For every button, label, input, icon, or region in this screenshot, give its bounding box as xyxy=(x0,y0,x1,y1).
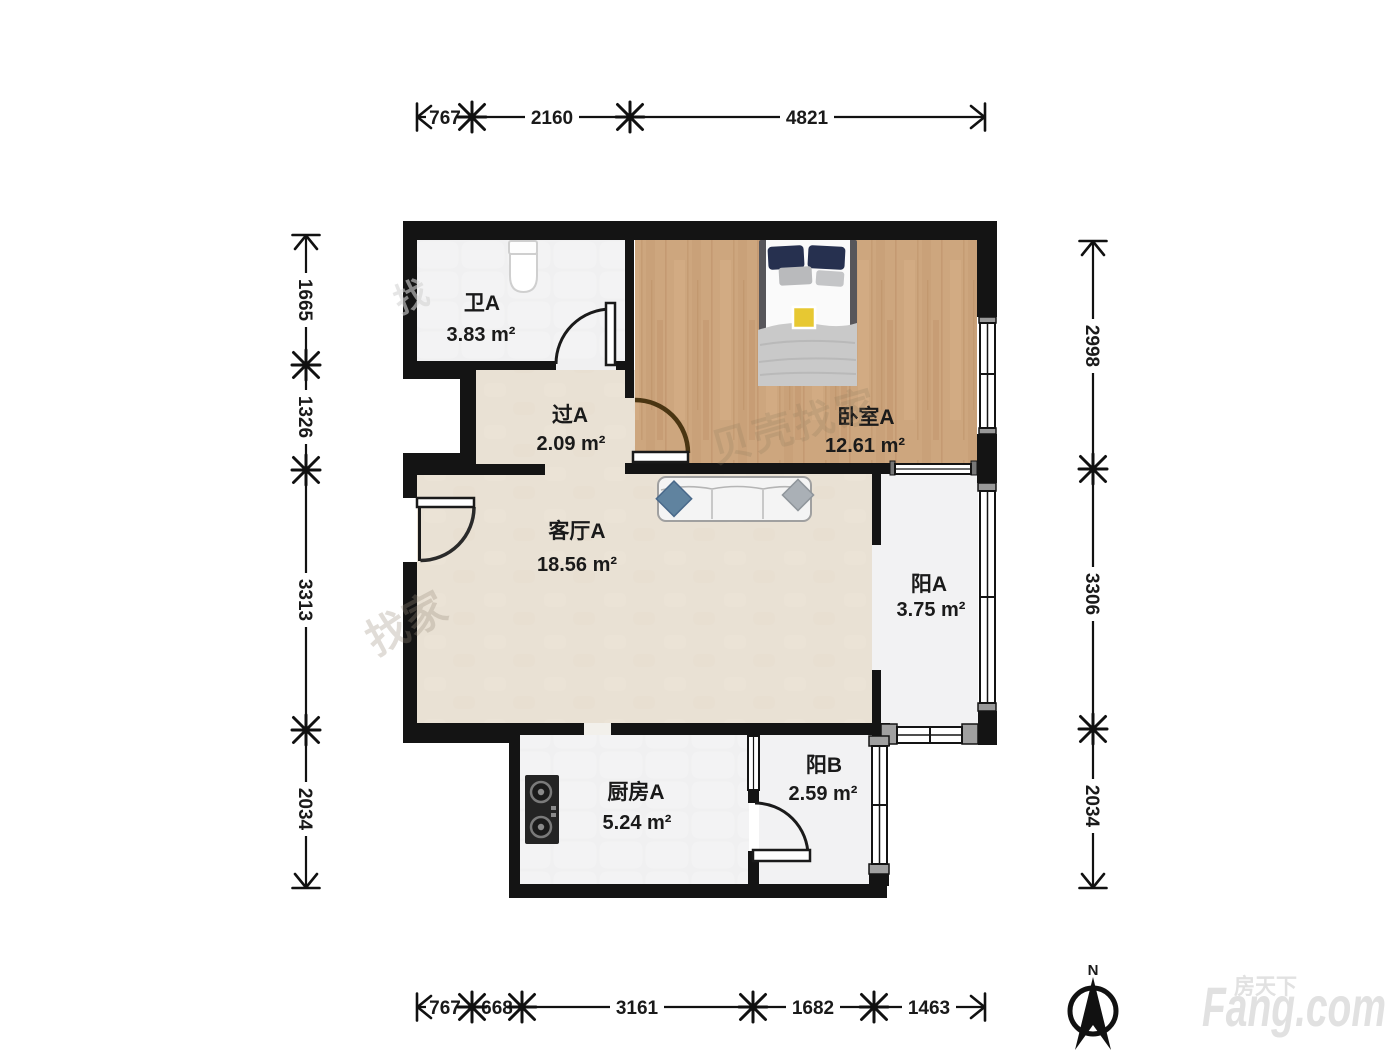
svg-text:2034: 2034 xyxy=(1081,785,1102,828)
svg-text:2.09 m²: 2.09 m² xyxy=(537,433,606,455)
svg-text:卫A: 卫A xyxy=(464,292,500,315)
svg-text:2.59 m²: 2.59 m² xyxy=(789,783,858,805)
svg-text:3.83 m²: 3.83 m² xyxy=(447,324,516,346)
svg-text:767: 767 xyxy=(429,998,461,1019)
svg-text:1463: 1463 xyxy=(908,998,950,1019)
svg-text:过A: 过A xyxy=(552,403,588,427)
svg-text:3.75 m²: 3.75 m² xyxy=(897,599,966,621)
svg-text:12.61 m²: 12.61 m² xyxy=(825,435,905,457)
svg-text:3161: 3161 xyxy=(616,998,659,1019)
svg-text:N: N xyxy=(1088,962,1099,979)
svg-text:3313: 3313 xyxy=(294,579,315,621)
svg-text:767: 767 xyxy=(429,108,461,129)
svg-text:1665: 1665 xyxy=(294,279,315,322)
svg-text:厨房A: 厨房A xyxy=(607,780,664,804)
svg-text:5.24 m²: 5.24 m² xyxy=(603,812,672,834)
svg-text:1326: 1326 xyxy=(294,396,315,438)
svg-text:1682: 1682 xyxy=(792,998,834,1019)
svg-text:2998: 2998 xyxy=(1081,325,1102,367)
svg-text:3306: 3306 xyxy=(1081,573,1102,615)
svg-text:Fang.com: Fang.com xyxy=(1202,975,1386,1038)
svg-text:2160: 2160 xyxy=(531,108,573,129)
svg-text:2034: 2034 xyxy=(294,788,315,831)
svg-text:18.56 m²: 18.56 m² xyxy=(537,554,617,576)
svg-text:阳B: 阳B xyxy=(806,754,842,777)
svg-text:阳A: 阳A xyxy=(911,573,947,596)
svg-text:4821: 4821 xyxy=(786,108,829,129)
svg-text:客厅A: 客厅A xyxy=(548,519,605,543)
